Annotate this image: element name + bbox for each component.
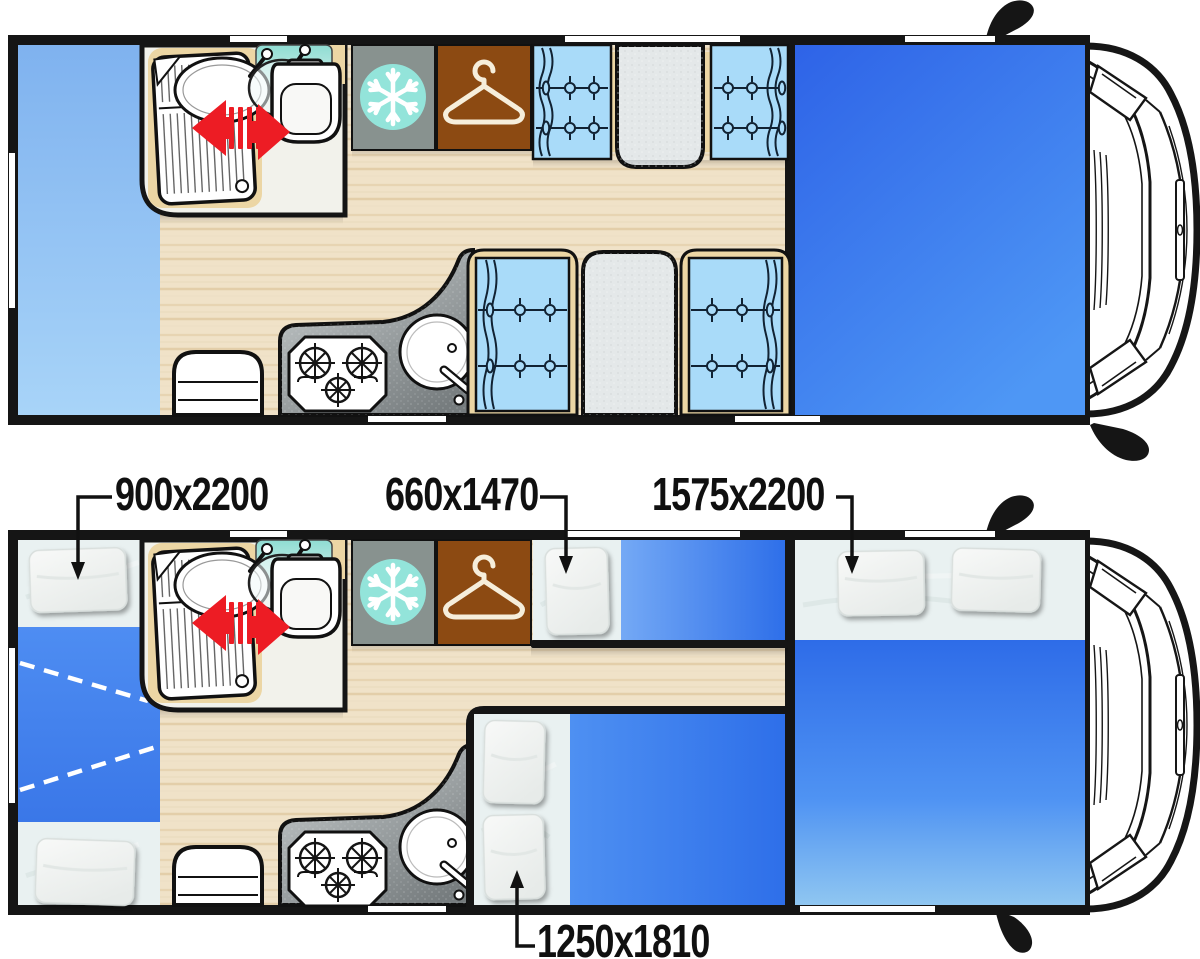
entry-step bbox=[174, 352, 262, 415]
side-mirror-icon bbox=[986, 495, 1034, 534]
shadow bbox=[160, 710, 343, 719]
bed-dimension-label-front-dinette: 660x1470 bbox=[385, 471, 538, 517]
drain bbox=[236, 180, 249, 193]
dinette-bench bbox=[681, 250, 790, 415]
entry-step bbox=[174, 847, 262, 905]
dinette-table bbox=[583, 252, 676, 415]
rear-dinette-bed bbox=[466, 706, 788, 915]
front-dinette-bed bbox=[531, 540, 788, 657]
plan-night-layout bbox=[0, 495, 1200, 959]
bed-dimension-label-cab-dropdown: 1575x2200 bbox=[652, 471, 825, 517]
plan-day-layout bbox=[0, 0, 1200, 465]
pillow bbox=[951, 548, 1041, 612]
bunk-mattress bbox=[18, 627, 160, 822]
drain bbox=[236, 675, 249, 688]
stove-burners-icon bbox=[289, 337, 386, 411]
dinette-seat bbox=[533, 45, 611, 159]
rear-bunk-beds bbox=[18, 540, 160, 906]
rear-dinette bbox=[468, 250, 790, 415]
vehicle-cab-outline bbox=[1086, 46, 1197, 414]
bathroom bbox=[142, 540, 345, 710]
rear-bed-stowed bbox=[18, 45, 160, 415]
pillow bbox=[35, 838, 135, 905]
shadow bbox=[352, 150, 531, 158]
dinette-table bbox=[617, 45, 703, 167]
floorplan-page: 900x2200 660x1470 1575x2200 1250x1810 bbox=[0, 0, 1200, 959]
pillow bbox=[483, 720, 545, 804]
bed-dimension-label-rear-bunk: 900x2200 bbox=[115, 471, 268, 517]
pillow bbox=[545, 547, 609, 635]
bed-dimension-label-rear-dinette: 1250x1810 bbox=[537, 918, 710, 959]
bed-mattress bbox=[621, 540, 785, 640]
pillow bbox=[483, 814, 545, 900]
fridge bbox=[352, 45, 435, 150]
shadow bbox=[533, 160, 788, 168]
wardrobe bbox=[437, 45, 531, 150]
bathroom bbox=[142, 45, 345, 215]
pillow bbox=[837, 550, 924, 615]
bed-mattress bbox=[570, 714, 785, 905]
stove-burners-icon bbox=[289, 832, 386, 906]
dinette-seat bbox=[711, 45, 788, 159]
vehicle-cab-outline bbox=[1086, 541, 1197, 909]
cab-dropdown-bed-made bbox=[795, 540, 1085, 905]
shadow bbox=[160, 215, 343, 224]
front-dinette bbox=[533, 45, 788, 168]
cab-bed-mattress bbox=[795, 640, 1085, 905]
side-mirror-icon bbox=[996, 911, 1032, 953]
cab-dropdown-bed-stowed bbox=[795, 45, 1085, 415]
fridge bbox=[352, 540, 435, 645]
side-mirror-icon bbox=[1090, 423, 1149, 461]
side-mirror-icon bbox=[986, 0, 1034, 39]
dinette-bench bbox=[468, 250, 577, 415]
wardrobe bbox=[437, 540, 531, 645]
shadow bbox=[531, 648, 788, 657]
pillow bbox=[29, 547, 127, 612]
shadow bbox=[352, 645, 531, 653]
